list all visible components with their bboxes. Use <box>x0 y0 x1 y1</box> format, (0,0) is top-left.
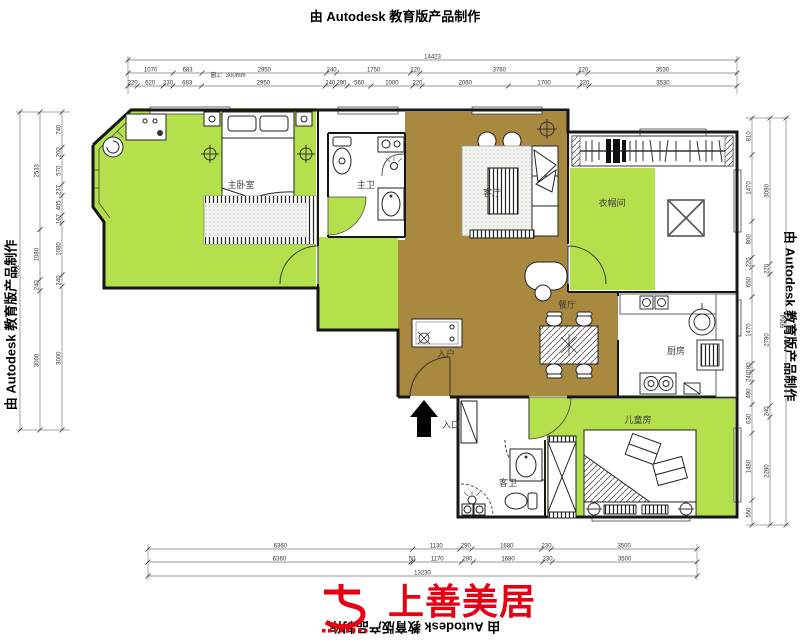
hall-floor <box>318 237 398 330</box>
dimension-value: 3530 <box>656 81 670 87</box>
dimension-value: 1470 <box>747 323 753 337</box>
entrance-arrow <box>410 400 438 437</box>
label-living: 客厅 <box>483 187 501 198</box>
dimension-value: 1750 <box>367 68 381 74</box>
dimension-value: 1170 <box>431 557 445 563</box>
nightstand-right <box>296 112 312 126</box>
dimension-row: 74020057023740516710802403000 <box>57 110 65 433</box>
dimension-row: 14423 <box>126 55 740 63</box>
bay-dresser <box>126 114 166 140</box>
bay-stool <box>103 137 123 157</box>
dimension-value: 630 <box>747 413 753 424</box>
dimension-value: 1000 <box>385 81 399 87</box>
label-master-bath: 主卫 <box>357 179 375 190</box>
dimension-value: 3000 <box>57 351 63 365</box>
dimension-value: 405 <box>57 200 63 211</box>
dimension-value: 220 <box>765 263 771 274</box>
dimension-value: 1470 <box>747 181 753 195</box>
dimension-value: 2280 <box>765 464 771 478</box>
dimension-value: 220 <box>578 68 589 74</box>
floor-plan: 主卧室 主卫 客厅 衣帽间 餐厅 厨房 儿童房 客卫 入户 入口 窗1：300m… <box>0 0 800 640</box>
brand-logo-mark <box>318 582 380 636</box>
toilet-icon <box>505 493 527 509</box>
dimension-value: 1480 <box>747 459 753 473</box>
dimension-value: 220 <box>747 257 753 268</box>
dimension-value: 1070 <box>144 68 158 74</box>
stove-icon <box>640 373 676 394</box>
tv-stand <box>470 230 534 238</box>
dimension-value: 683 <box>183 68 194 74</box>
dimension-value: 290 <box>336 81 347 87</box>
dimension-value: 13230 <box>414 571 431 577</box>
dimension-row: 2206202306832950240290560100022020601700… <box>126 81 740 89</box>
dimension-value: 3080 <box>765 184 771 198</box>
toilet-icon <box>333 148 351 174</box>
dimension-row: 810147080022065014701802404906301480550 <box>747 116 755 528</box>
dimension-value: 2950 <box>257 81 271 87</box>
crossed-box <box>668 200 704 236</box>
dimension-value: 240 <box>325 81 336 87</box>
brand-logo: 上善美居 <box>318 582 536 636</box>
dimension-value: 220 <box>579 81 590 87</box>
dimension-row: 6360113029016802303500 <box>146 544 700 552</box>
label-master-bedroom: 主卧室 <box>227 179 254 190</box>
dimension-value: 1130 <box>430 544 444 550</box>
dimension-value: 240 <box>35 280 41 291</box>
dimension-value: 1680 <box>501 557 515 563</box>
nightstand-left <box>204 112 220 126</box>
dimension-row: 253310802403000 <box>35 110 43 433</box>
dimension-value: 240 <box>747 371 753 382</box>
dimension-value: 240 <box>57 275 63 286</box>
dimension-value: 1080 <box>57 242 63 256</box>
guest-sink-cabinet <box>510 449 542 481</box>
dimension-value: 167 <box>57 213 63 224</box>
dimension-value: 683 <box>182 81 193 87</box>
dimension-value: 800 <box>747 234 753 245</box>
dimension-value: 220 <box>410 68 421 74</box>
dimension-value: 230 <box>163 81 174 87</box>
dimension-value: 50 <box>409 557 416 563</box>
bedroom-rug <box>204 196 316 244</box>
dimension-value: 1680 <box>500 544 514 550</box>
dimension-value: 1700 <box>537 81 551 87</box>
dimension-row: 9064 <box>781 116 789 528</box>
dimension-value: 740 <box>57 124 63 135</box>
dimension-value: 2780 <box>765 333 771 347</box>
dimension-value: 3500 <box>618 557 632 563</box>
dimension-value: 237 <box>57 184 63 195</box>
dimension-value: 3000 <box>35 353 41 367</box>
label-kids-room: 儿童房 <box>624 414 651 425</box>
dimension-value: 14423 <box>424 55 441 61</box>
dimension-value: 2950 <box>258 68 272 74</box>
dimension-value: 3530 <box>656 68 670 74</box>
dimension-value: 230 <box>542 544 553 550</box>
sill-note: 窗1：300mm <box>210 71 245 79</box>
dimension-value: 240 <box>765 406 771 417</box>
brand-logo-text: 上善美居 <box>388 582 536 622</box>
dimension-value: 6852 <box>15 264 21 278</box>
dimension-value: 240 <box>327 68 338 74</box>
dimension-value: 1080 <box>35 247 41 261</box>
dimension-row: 6852 <box>15 110 23 433</box>
label-guest-bath: 客卫 <box>499 477 517 488</box>
dimension-value: 620 <box>145 81 156 87</box>
dimension-value: 290 <box>461 544 472 550</box>
dimension-value: 6360 <box>273 557 287 563</box>
label-entrance: 入口 <box>442 420 460 430</box>
dimension-value: 550 <box>747 507 753 518</box>
label-dining: 餐厅 <box>558 299 576 310</box>
dimension-value: 2533 <box>35 163 41 177</box>
dimension-value: 220 <box>412 81 423 87</box>
dimension-value: 200 <box>57 147 63 158</box>
dimension-value: 2060 <box>459 81 473 87</box>
label-cloakroom: 衣帽间 <box>598 197 625 208</box>
dimension-value: 180 <box>747 362 753 373</box>
label-entry-cabinet: 入户 <box>437 348 455 359</box>
toilet-tank <box>333 137 351 146</box>
dimension-value: 9064 <box>781 314 787 328</box>
dimension-value: 560 <box>354 81 365 87</box>
dimension-value: 650 <box>747 276 753 287</box>
dimension-value: 220 <box>128 81 139 87</box>
dimension-row: 13230 <box>146 571 700 579</box>
dimension-row: 636050117029016802303500 <box>146 557 700 565</box>
kids-furniture <box>548 430 696 518</box>
dimension-value: 290 <box>462 557 473 563</box>
dimension-value: 570 <box>57 165 63 176</box>
dimension-row: 308022027802402280 <box>765 116 773 528</box>
label-kitchen: 厨房 <box>667 345 685 356</box>
dimension-value: 3760 <box>493 68 507 74</box>
dimension-value: 6360 <box>274 544 288 550</box>
dimension-value: 3500 <box>617 544 631 550</box>
dimension-value: 230 <box>543 557 554 563</box>
dimension-value: 490 <box>747 388 753 399</box>
cloak-green-floor <box>570 168 655 290</box>
dimension-value: 810 <box>747 131 753 142</box>
